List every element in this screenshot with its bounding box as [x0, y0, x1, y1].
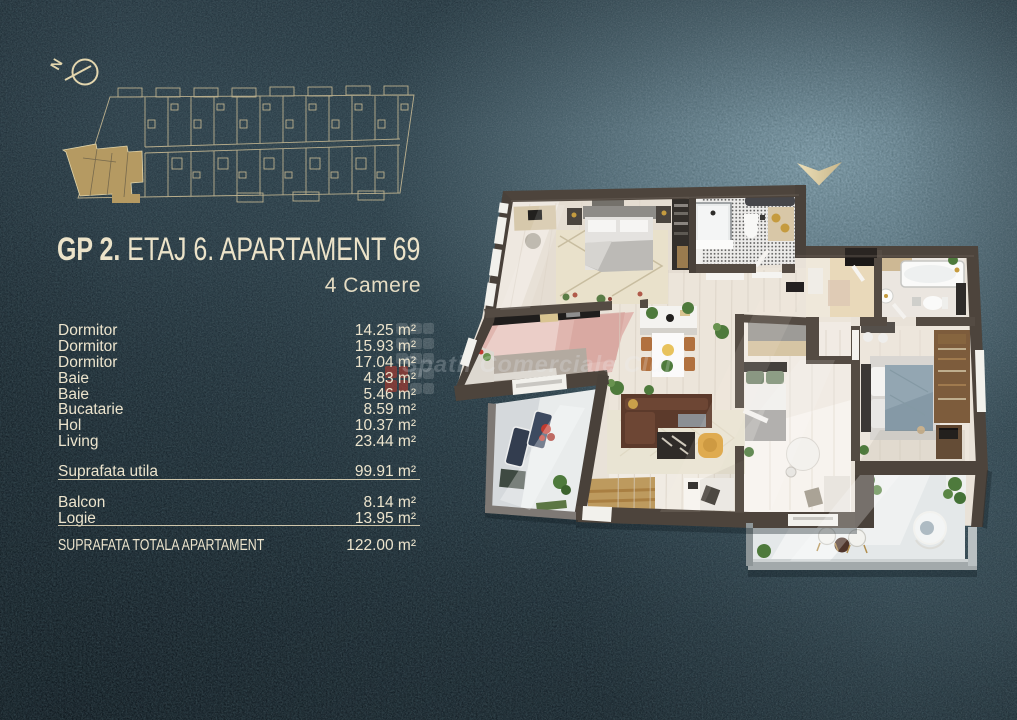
- svg-text:N: N: [47, 56, 66, 73]
